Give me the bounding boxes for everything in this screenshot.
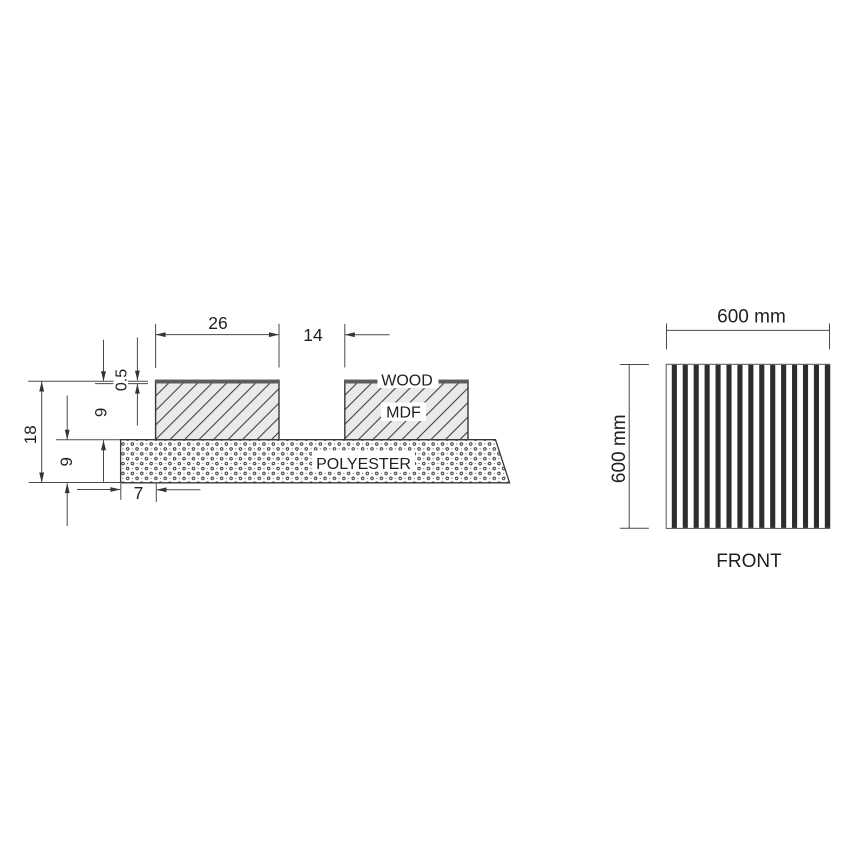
svg-text:0.5: 0.5 xyxy=(113,369,130,391)
svg-text:600 mm: 600 mm xyxy=(717,307,786,328)
svg-text:POLYESTER: POLYESTER xyxy=(316,456,411,473)
svg-text:26: 26 xyxy=(208,313,227,333)
svg-text:WOOD: WOOD xyxy=(381,372,433,389)
svg-text:7: 7 xyxy=(134,483,144,503)
svg-text:14: 14 xyxy=(303,325,323,345)
svg-text:FRONT: FRONT xyxy=(716,551,782,572)
svg-text:9: 9 xyxy=(57,457,76,466)
svg-text:600 mm: 600 mm xyxy=(609,414,630,483)
svg-text:18: 18 xyxy=(21,425,40,444)
svg-text:MDF: MDF xyxy=(386,405,421,422)
svg-text:9: 9 xyxy=(92,408,111,417)
